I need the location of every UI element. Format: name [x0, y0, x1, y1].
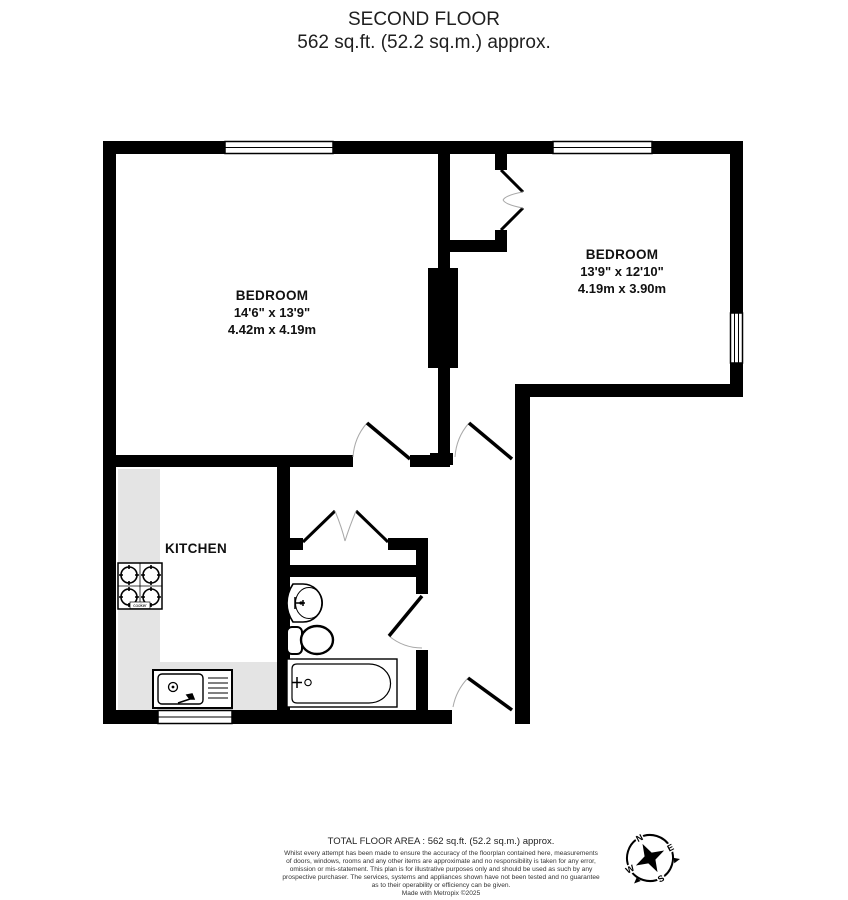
wardrobe-double-doors [501, 170, 523, 230]
disclaimer-line: Whilst every attempt has been made to en… [37, 850, 845, 858]
disclaimer-line: omission or mis-statement. This plan is … [37, 866, 845, 874]
kitchen-label: KITCHEN [131, 540, 261, 557]
bedroom2-label: BEDROOM 13'9" x 12'10" 4.19m x 3.90m [512, 246, 732, 297]
chimney-breast [428, 268, 458, 368]
bedroom2-metric: 4.19m x 3.90m [512, 280, 732, 297]
floorplan-drawing: cooker [0, 0, 848, 900]
door-bathroom [389, 596, 422, 648]
cupboard-wall-right [388, 538, 428, 550]
window-bedroom2 [553, 142, 652, 154]
wardrobe-front-top [495, 154, 507, 170]
wall-bedroom1-bottom-stub [410, 455, 450, 467]
basin-icon [287, 584, 323, 622]
hall-cupboard-doors [303, 511, 388, 542]
wall-bathroom-east-lower [416, 650, 428, 710]
wall-top-1 [103, 141, 225, 154]
floorplan-page: SECOND FLOOR 562 sq.ft. (52.2 sq.m.) app… [0, 0, 848, 900]
wall-hall-east [515, 384, 530, 724]
hob-icon: cooker [118, 563, 162, 609]
wall-bathroom-east-upper [416, 577, 428, 594]
bedroom2-imperial: 13'9" x 12'10" [512, 263, 732, 280]
wall-top-3 [652, 141, 743, 154]
metropix-credit: Made with Metropix ©2025 [37, 890, 845, 898]
disclaimer-line: of doors, windows, rooms and any other i… [37, 858, 845, 866]
disclaimer-line: prospective purchaser. The services, sys… [37, 874, 845, 882]
wall-bathroom-top [277, 565, 428, 577]
kitchen-sink-icon [153, 670, 232, 708]
window-bedroom1 [225, 142, 333, 154]
wall-bottom-2 [232, 710, 452, 724]
cooker-label: cooker [133, 603, 147, 608]
kitchen-name: KITCHEN [131, 540, 261, 557]
window-bedroom2-side [731, 313, 743, 363]
bedroom2-name: BEDROOM [512, 246, 732, 263]
wardrobe-bottom-wall [438, 240, 507, 252]
bedroom1-metric: 4.42m x 4.19m [162, 321, 382, 338]
total-floor-area: TOTAL FLOOR AREA : 562 sq.ft. (52.2 sq.m… [37, 836, 845, 848]
exterior-walls [103, 141, 743, 724]
wall-right-lower [730, 363, 743, 384]
wall-top-2 [333, 141, 553, 154]
window-kitchen [158, 711, 232, 724]
disclaimer-line: as to their operability or efficiency ca… [37, 882, 845, 890]
door-bedroom2 [455, 423, 512, 459]
windows [158, 142, 743, 724]
cupboard-wall-left [277, 538, 303, 550]
door-entrance [453, 678, 512, 710]
bedroom1-name: BEDROOM [162, 287, 382, 304]
bedroom1-label: BEDROOM 14'6" x 13'9" 4.42m x 4.19m [162, 287, 382, 338]
door-bedroom1 [353, 423, 410, 459]
wall-bedroom2-bottom [515, 384, 743, 397]
footer: TOTAL FLOOR AREA : 562 sq.ft. (52.2 sq.m… [37, 836, 845, 898]
wall-bedroom1-bottom [116, 455, 353, 467]
toilet-icon [287, 626, 333, 654]
bathtub-icon [287, 659, 397, 707]
wall-left [103, 154, 116, 724]
wall-bottom-1 [103, 710, 158, 724]
bedroom1-imperial: 14'6" x 13'9" [162, 304, 382, 321]
